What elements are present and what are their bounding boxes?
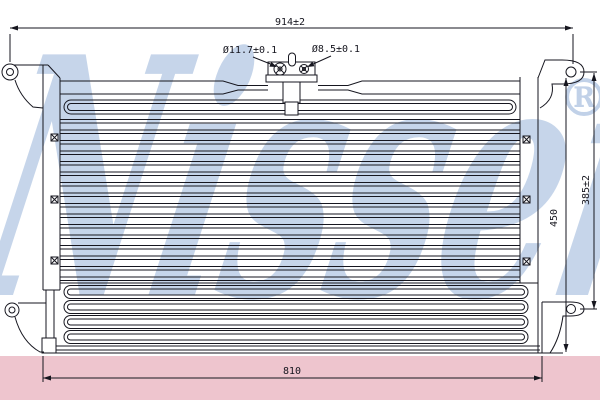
drawing-canvas: Nissens ®: [0, 0, 600, 400]
condenser-technical-drawing: Nissens ®: [0, 0, 600, 400]
small-port: [300, 65, 309, 74]
label-mount-height: 385±2: [581, 175, 592, 205]
label-large-port-diameter: Ø11.7±0.1: [223, 44, 277, 56]
slot-hole: [289, 53, 296, 66]
label-small-port-diameter: Ø8.5±0.1: [312, 43, 360, 55]
label-lower-width: 810: [283, 366, 301, 377]
condenser-core: [60, 100, 538, 283]
label-body-height: 450: [549, 209, 560, 227]
large-port: [274, 63, 286, 75]
label-overall-width: 914±2: [275, 17, 305, 28]
block-stem: [283, 82, 300, 115]
